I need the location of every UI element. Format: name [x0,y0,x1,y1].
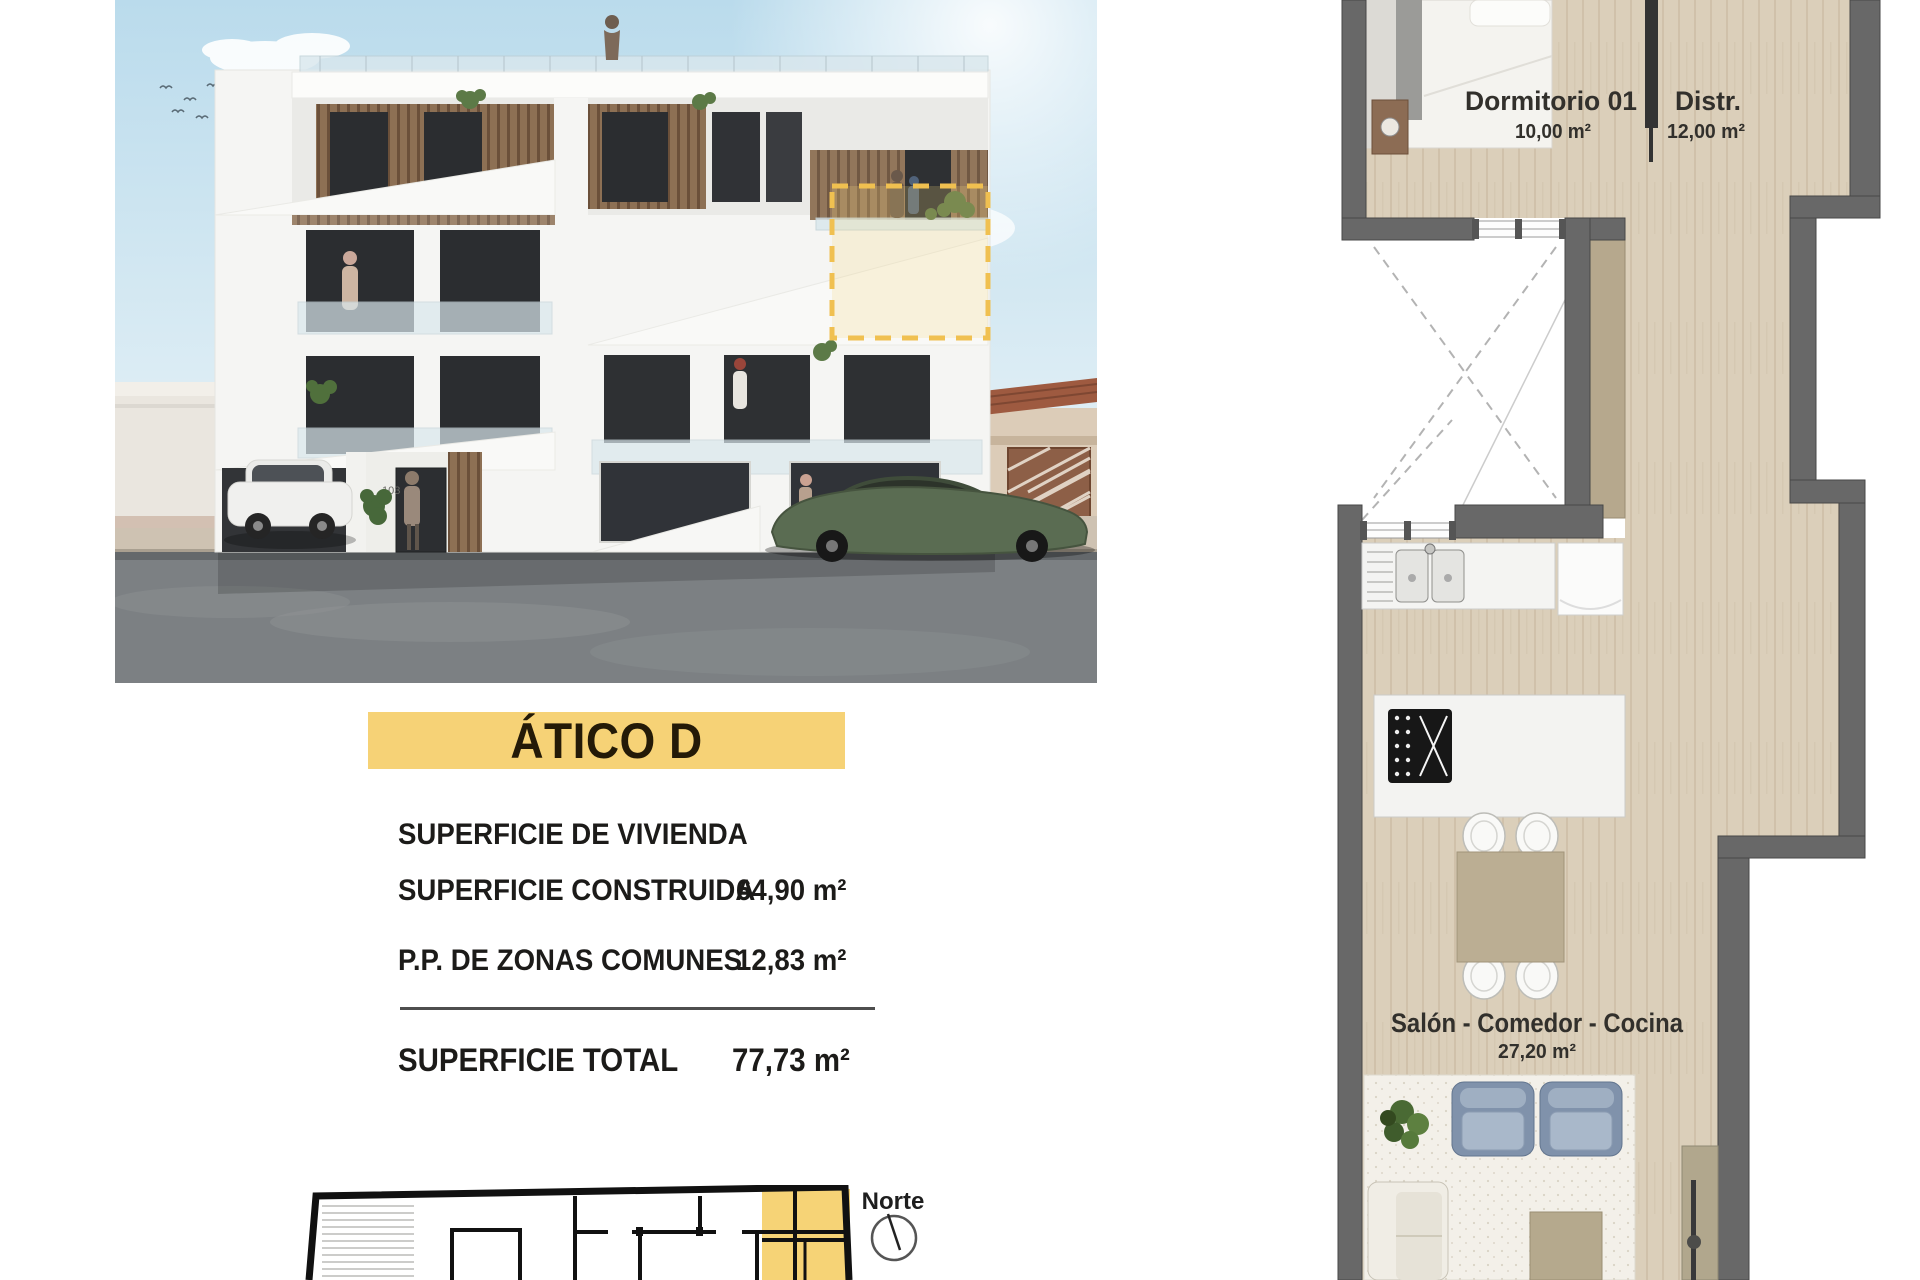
building-rendering: 103 [115,0,1097,683]
entrance-door [396,468,446,552]
window-band [1472,219,1566,239]
nightstand [1372,100,1408,154]
floor-plan-svg: Dormitorio 01 10,00 m² Distr. 12,00 m² S… [1240,0,1920,1280]
balcony-person-icon [733,358,747,409]
surface-section-title: SUPERFICIE DE VIVIENDA [398,818,778,852]
armchair [1540,1082,1622,1156]
north-compass: Norte [855,1180,965,1280]
void-lightwell [1362,240,1565,523]
unit-highlight-box [832,186,988,338]
unit-name-banner: ÁTICO D [368,712,845,769]
key-plan-stairs [322,1206,414,1276]
room-label-dormitorio: Dormitorio 01 [1465,86,1637,116]
north-compass-svg: Norte [855,1180,965,1280]
mid-floor-right [592,340,982,474]
armchair [1452,1082,1534,1156]
sofa [1368,1182,1448,1280]
surface-total-label: SUPERFICIE TOTAL [398,1042,703,1079]
kitchen-counter [1362,543,1555,609]
room-area-dormitorio: 10,00 m² [1515,121,1591,143]
tv-cabinet [1682,1146,1718,1280]
coffee-table [1530,1212,1602,1280]
surface-row-label: P.P. DE ZONAS COMUNES [398,944,772,978]
induction-hob [1388,709,1452,783]
room-area-salon: 27,20 m² [1498,1041,1576,1063]
surface-row-value: 64,90 m² [736,874,856,908]
roof-person-icon [604,15,620,60]
building-rendering-svg: 103 [115,0,1097,683]
room-label-distribuidor: Distr. [1675,86,1741,116]
compass-circle-icon [872,1216,916,1260]
brochure-page: 103 [0,0,1920,1280]
hall-closet [1590,240,1625,518]
kitchen-island [1374,695,1625,817]
surface-row-label: SUPERFICIE CONSTRUIDA [398,874,786,908]
room-area-distribuidor: 12,00 m² [1667,121,1745,143]
kitchen-appliance [1558,543,1623,615]
key-plan-column [636,1227,643,1236]
north-label: Norte [862,1188,925,1215]
key-plan [285,1185,860,1280]
key-plan-column [696,1227,703,1236]
floor-plan: Dormitorio 01 10,00 m² Distr. 12,00 m² S… [1240,0,1920,1280]
room-label-salon: Salón - Comedor - Cocina [1391,1008,1684,1038]
surface-total-value: 77,73 m² [732,1042,860,1079]
balcony-person-icon [342,251,358,310]
dining-table [1457,852,1564,962]
total-divider [400,1007,875,1010]
window-band [1360,521,1456,540]
key-plan-svg [285,1185,860,1280]
unit-name: ÁTICO D [510,712,702,770]
surface-row-value: 12,83 m² [736,944,856,978]
